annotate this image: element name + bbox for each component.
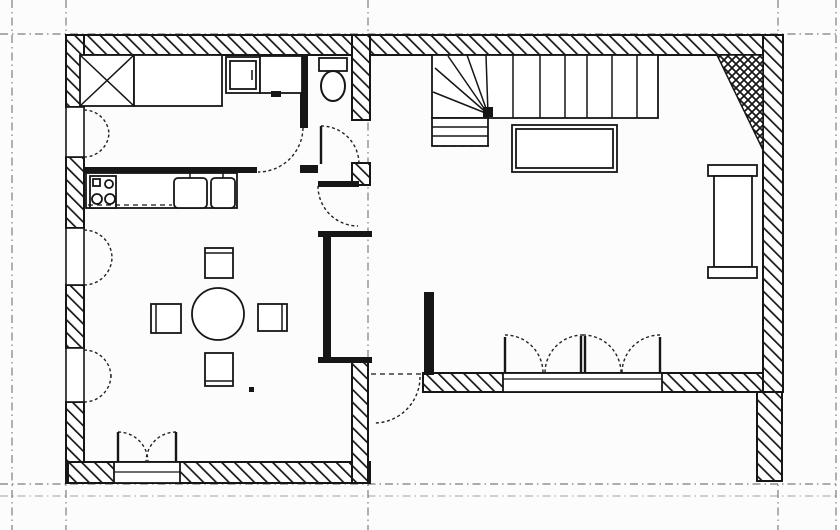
sink-basin-right <box>211 178 235 208</box>
wall-right-stub <box>757 392 782 481</box>
radiator-cap-bottom <box>708 267 757 278</box>
stair-body <box>432 55 658 118</box>
door-arc-terrace <box>374 377 420 423</box>
door-arc-french-l1 <box>505 335 543 373</box>
window-arc-3b <box>84 375 111 402</box>
stove-burner-c <box>105 194 115 204</box>
chimney-corner <box>717 55 763 150</box>
stove-burner-a <box>105 180 113 188</box>
dining-table <box>192 288 244 340</box>
door-sill-living <box>503 373 662 392</box>
stove-burner-b <box>92 194 102 204</box>
radiator-body <box>714 176 752 267</box>
sink-basin-left <box>174 178 207 208</box>
wall-middle-c <box>352 360 368 483</box>
worktop-upper <box>260 56 302 93</box>
door-arc-kitchen <box>258 128 303 172</box>
door-arc-garden-a <box>118 432 148 462</box>
window-frame-1 <box>66 107 84 157</box>
niche-left <box>323 237 331 359</box>
radiator-cap-top <box>708 165 757 176</box>
stair-newel <box>483 107 493 117</box>
fixtures-and-furniture <box>80 55 757 392</box>
window-frame-2 <box>66 228 84 285</box>
chimney-flue <box>717 55 763 150</box>
window-arc-1b <box>84 132 109 157</box>
door-arc-wc <box>321 126 359 164</box>
wardrobe <box>134 55 222 106</box>
worktop-handle <box>271 91 281 97</box>
door-arc-hall-living <box>318 186 358 226</box>
wall-middle-a <box>352 35 370 120</box>
window-arc-1a <box>84 110 109 135</box>
wall-right <box>763 35 783 392</box>
window-frame-3 <box>66 348 84 402</box>
wc-wall-stub <box>300 165 318 173</box>
window-arc-3a <box>84 350 111 377</box>
sofa-table-inner <box>516 129 613 168</box>
wall-top <box>68 35 783 55</box>
niche-top <box>318 231 372 237</box>
window-arc-2a <box>84 230 112 258</box>
stove-plate <box>93 179 100 186</box>
door-arc-french-r2 <box>622 335 660 373</box>
window-arc-2b <box>84 257 112 285</box>
floor-mark <box>249 387 254 392</box>
door-arc-french-l2 <box>545 335 583 373</box>
hall-door-leaf <box>318 181 359 187</box>
toilet-tank <box>319 58 347 71</box>
niche-bottom <box>318 357 372 363</box>
hall-stub-wall <box>424 292 434 375</box>
door-arc-garden-b <box>146 432 176 462</box>
stair-landing <box>432 118 488 146</box>
floor-plan-page <box>0 0 840 530</box>
wall-left-b <box>66 157 84 228</box>
toilet-bowl <box>321 71 345 101</box>
wall-left-c <box>66 285 84 348</box>
door-arc-french-r1 <box>583 335 621 373</box>
floor-plan-drawing <box>0 0 840 530</box>
